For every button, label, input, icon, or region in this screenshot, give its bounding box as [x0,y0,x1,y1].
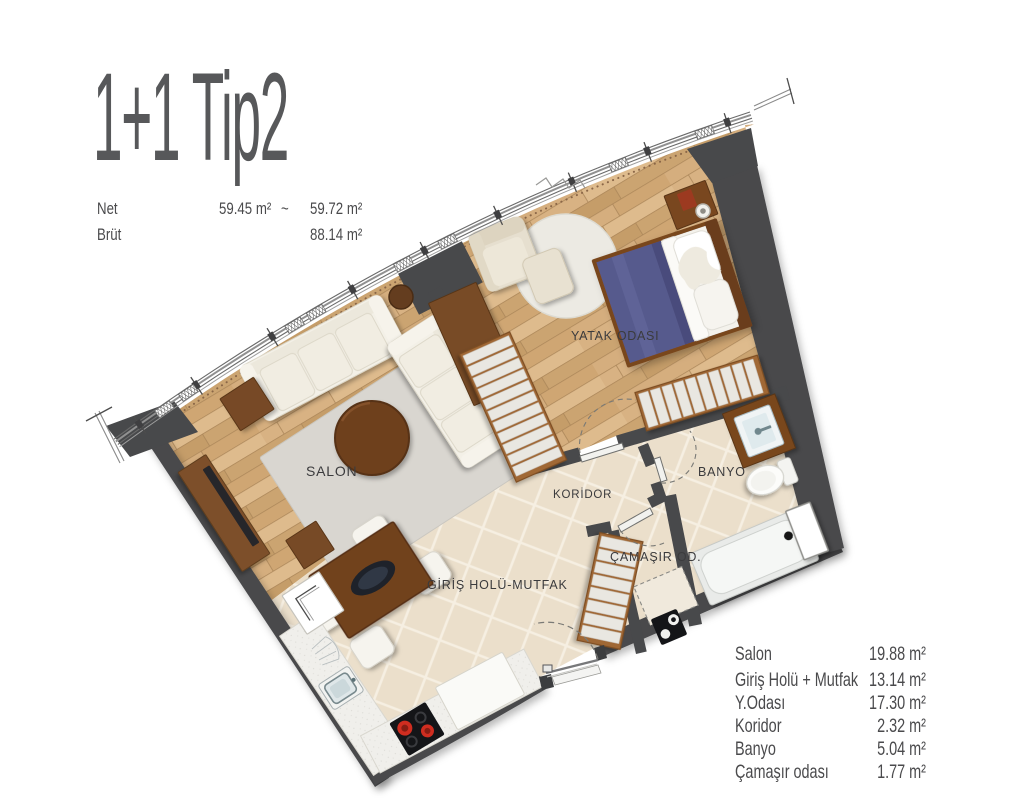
svg-text:YATAK ODASI: YATAK ODASI [571,329,659,343]
svg-text:Banyo: Banyo [735,738,776,759]
svg-text:59.45 m²: 59.45 m² [219,200,271,219]
svg-text:59.72 m²: 59.72 m² [310,200,362,219]
svg-text:Giriş Holü + Mutfak: Giriş Holü + Mutfak [735,669,859,690]
svg-text:19.88 m²: 19.88 m² [869,643,926,664]
svg-text:Koridor: Koridor [735,715,782,736]
svg-text:1.77 m²: 1.77 m² [877,761,926,782]
svg-text:KORİDOR: KORİDOR [553,488,612,501]
svg-text:Salon: Salon [735,643,772,664]
svg-text:Çamaşır odası: Çamaşır odası [735,761,829,782]
svg-text:BANYO: BANYO [698,465,746,479]
svg-text:ÇAMAŞIR OD.: ÇAMAŞIR OD. [610,550,701,564]
svg-text:13.14 m²: 13.14 m² [869,669,926,690]
svg-text:1+1 Tip2: 1+1 Tip2 [93,48,288,187]
svg-text:17.30 m²: 17.30 m² [869,692,926,713]
svg-text:2.32 m²: 2.32 m² [877,715,926,736]
svg-text:Brüt: Brüt [97,226,122,245]
svg-text:5.04 m²: 5.04 m² [877,738,926,759]
svg-text:Net: Net [97,200,118,219]
svg-text:GİRİŞ HOLÜ-MUTFAK: GİRİŞ HOLÜ-MUTFAK [427,578,568,592]
svg-text:88.14 m²: 88.14 m² [310,226,362,245]
svg-text:SALON: SALON [306,463,357,479]
svg-text:Y.Odası: Y.Odası [735,692,785,713]
svg-text:~: ~ [281,200,289,219]
